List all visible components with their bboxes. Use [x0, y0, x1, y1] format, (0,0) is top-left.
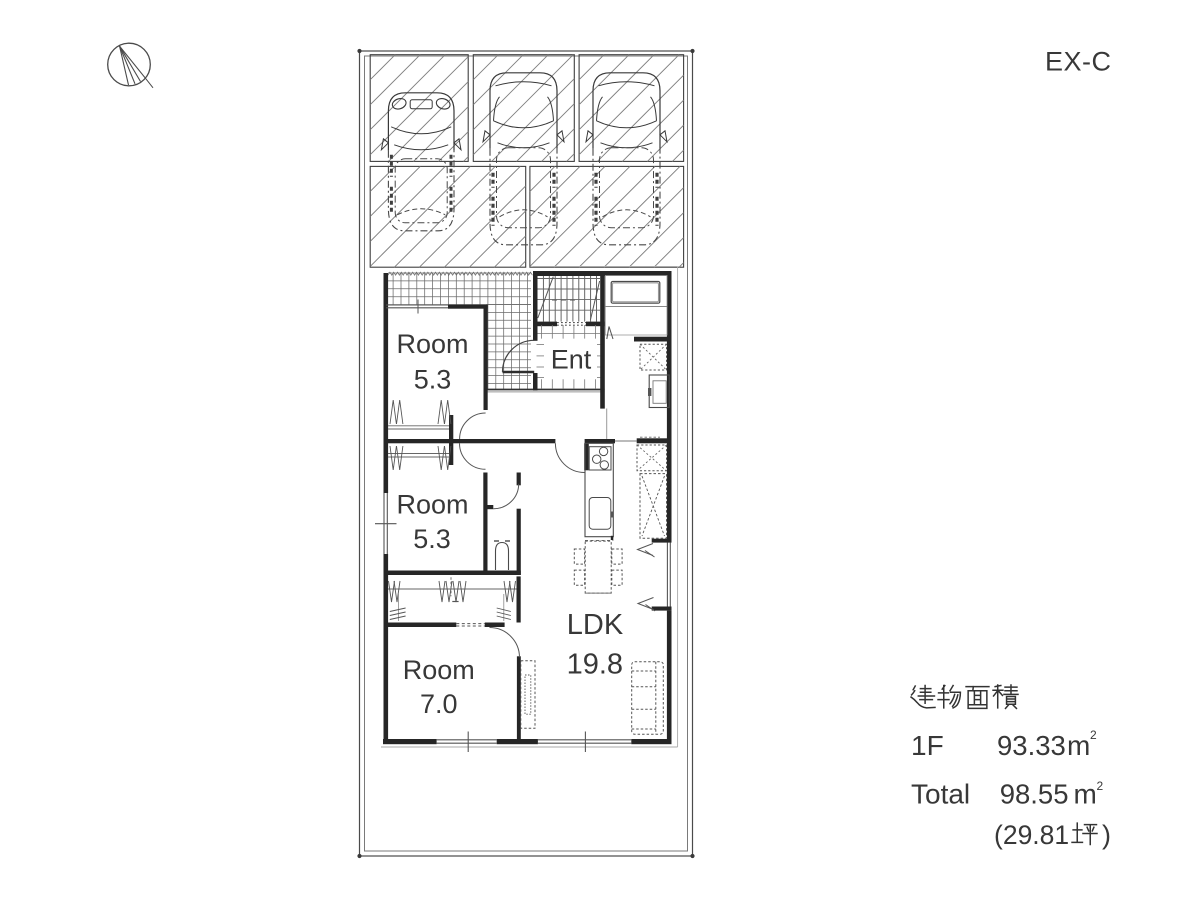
svg-text:(29.81: (29.81 — [994, 820, 1069, 850]
svg-text:Room: Room — [403, 655, 475, 685]
svg-text:): ) — [1102, 820, 1111, 850]
svg-text:5.3: 5.3 — [414, 365, 452, 395]
svg-text:1F: 1F — [911, 730, 944, 761]
svg-text:Room: Room — [396, 490, 468, 520]
svg-text:EX-C: EX-C — [1045, 47, 1112, 77]
svg-text:5.3: 5.3 — [413, 524, 451, 554]
svg-text:93.33: 93.33 — [997, 730, 1066, 761]
svg-text:98.55: 98.55 — [1000, 779, 1069, 810]
svg-text:Total: Total — [911, 779, 970, 810]
svg-text:7.0: 7.0 — [420, 689, 458, 719]
svg-text:19.8: 19.8 — [567, 649, 623, 681]
svg-text:LDK: LDK — [567, 609, 624, 641]
svg-text:m: m — [1067, 730, 1090, 761]
svg-text:Ent: Ent — [551, 345, 592, 375]
svg-text:2: 2 — [1090, 728, 1097, 742]
svg-text:2: 2 — [1097, 779, 1104, 793]
svg-text:m: m — [1074, 779, 1097, 810]
svg-text:Room: Room — [396, 329, 468, 359]
